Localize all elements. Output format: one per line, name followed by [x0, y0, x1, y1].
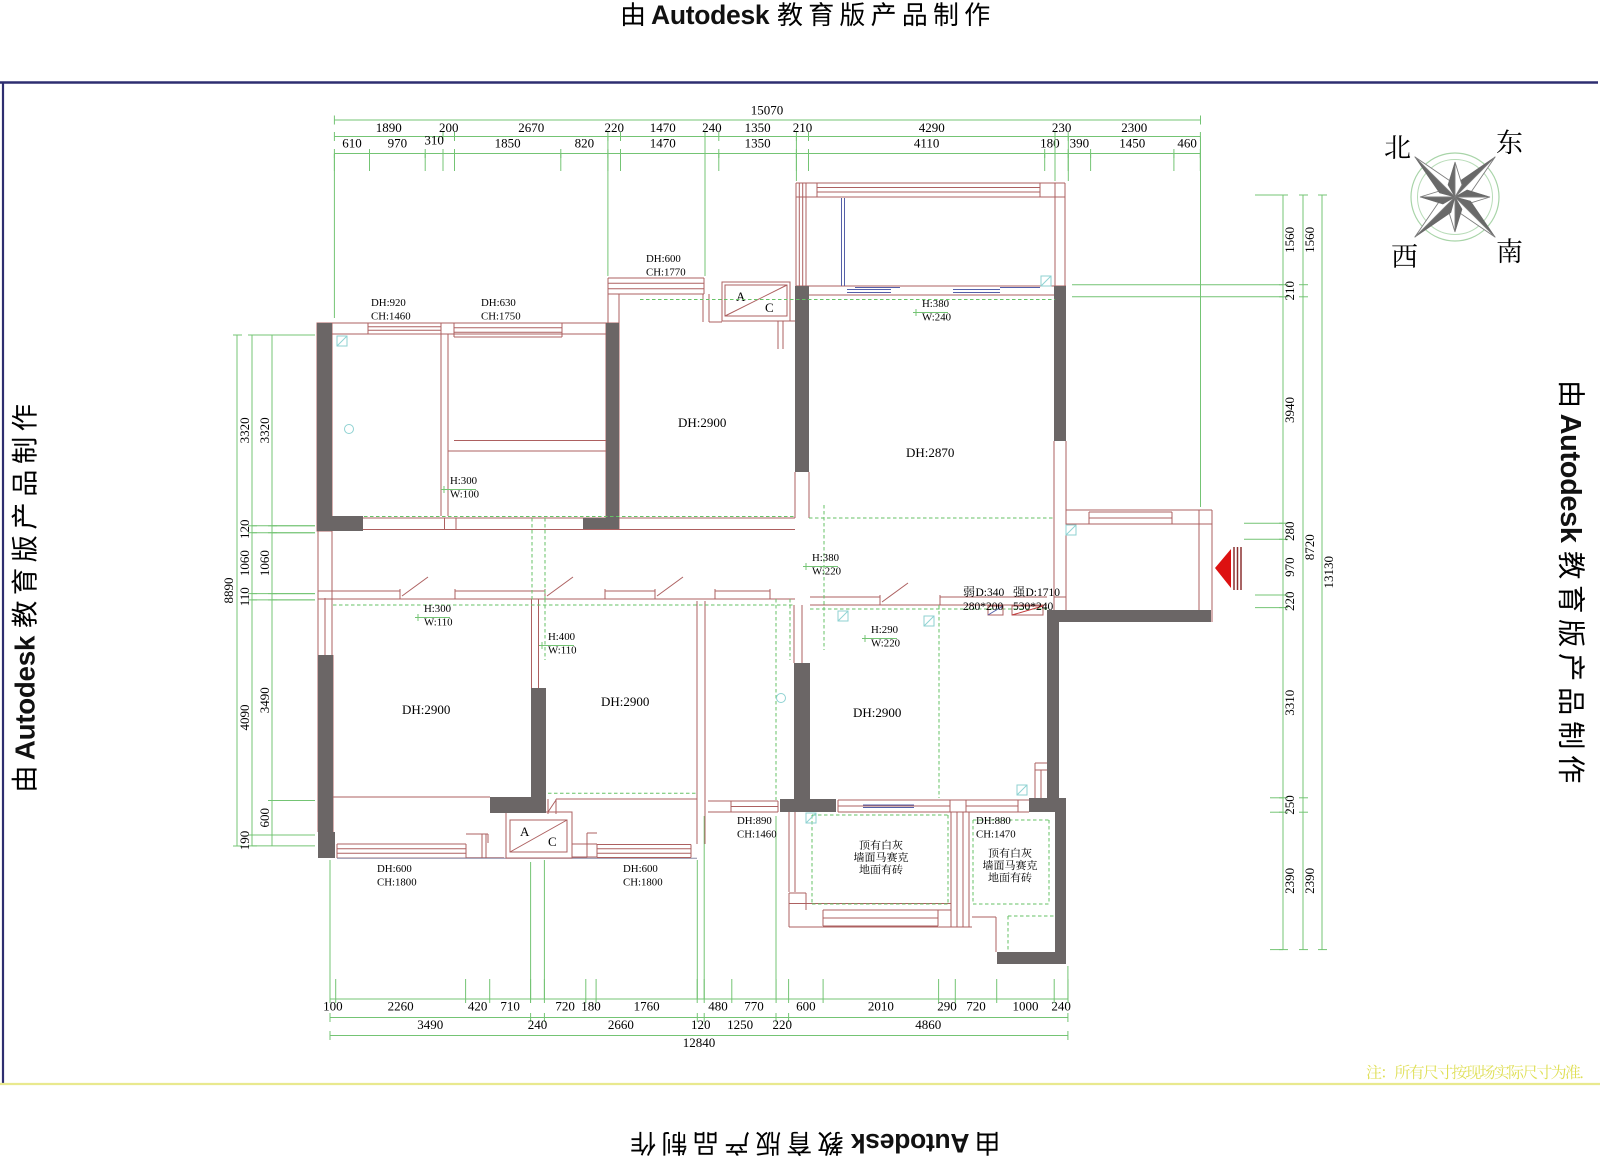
- svg-text:W:220: W:220: [871, 638, 900, 650]
- svg-text:DH:2900: DH:2900: [853, 705, 901, 720]
- svg-text:1560: 1560: [1302, 227, 1317, 253]
- svg-text:180: 180: [581, 999, 601, 1014]
- svg-text:D:340: D:340: [976, 587, 1005, 599]
- svg-text:390: 390: [1070, 136, 1090, 151]
- svg-text:240: 240: [528, 1017, 548, 1032]
- svg-text:290: 290: [937, 999, 957, 1014]
- svg-text:CH:1800: CH:1800: [623, 877, 663, 889]
- svg-text:D:1710: D:1710: [1026, 587, 1061, 599]
- svg-text:DH:2900: DH:2900: [678, 415, 726, 430]
- svg-text:DH:600: DH:600: [623, 863, 658, 875]
- svg-text:DH:600: DH:600: [646, 253, 681, 265]
- svg-text:120: 120: [237, 520, 252, 540]
- svg-text:DH:890: DH:890: [737, 815, 772, 827]
- svg-text:2260: 2260: [388, 999, 414, 1014]
- svg-text:W:100: W:100: [450, 489, 479, 501]
- svg-text:610: 610: [342, 136, 362, 151]
- svg-text:4090: 4090: [237, 704, 252, 730]
- svg-text:2390: 2390: [1302, 868, 1317, 894]
- svg-text:110: 110: [237, 587, 252, 606]
- svg-text:100: 100: [323, 999, 343, 1014]
- svg-text:1350: 1350: [745, 120, 771, 135]
- svg-text:4860: 4860: [915, 1017, 941, 1032]
- svg-text:CH:1800: CH:1800: [377, 877, 417, 889]
- svg-text:DH:2900: DH:2900: [402, 702, 450, 717]
- svg-text:DH:600: DH:600: [377, 863, 412, 875]
- svg-text:420: 420: [468, 999, 488, 1014]
- svg-text:710: 710: [500, 999, 520, 1014]
- svg-text:1470: 1470: [650, 136, 676, 151]
- svg-text:1250: 1250: [727, 1017, 753, 1032]
- svg-text:1060: 1060: [257, 550, 272, 576]
- svg-text:8720: 8720: [1302, 534, 1317, 560]
- svg-text:120: 120: [691, 1017, 711, 1032]
- svg-text:230: 230: [1052, 120, 1072, 135]
- svg-text:220: 220: [773, 1017, 793, 1032]
- svg-text:W:110: W:110: [424, 617, 453, 629]
- svg-text:A: A: [520, 824, 530, 839]
- svg-text:600: 600: [257, 808, 272, 828]
- svg-text:CH:1750: CH:1750: [481, 311, 521, 323]
- svg-text:720: 720: [966, 999, 986, 1014]
- svg-text:720: 720: [555, 999, 575, 1014]
- svg-text:8890: 8890: [221, 578, 236, 604]
- svg-text:H:290: H:290: [871, 624, 898, 636]
- svg-text:1890: 1890: [376, 120, 402, 135]
- svg-text:CH:1770: CH:1770: [646, 267, 686, 279]
- svg-text:970: 970: [1282, 557, 1297, 577]
- svg-text:2670: 2670: [518, 120, 544, 135]
- svg-text:210: 210: [1282, 281, 1297, 301]
- svg-text:H:380: H:380: [922, 298, 949, 310]
- svg-text:C: C: [548, 834, 557, 849]
- svg-text:310: 310: [424, 133, 444, 148]
- svg-text:250: 250: [1282, 795, 1297, 815]
- svg-text:3320: 3320: [257, 417, 272, 443]
- svg-text:CH:1460: CH:1460: [371, 311, 411, 323]
- svg-text:220: 220: [1282, 592, 1297, 612]
- svg-text:12840: 12840: [683, 1035, 716, 1050]
- svg-text:280: 280: [1282, 522, 1297, 542]
- svg-text:2300: 2300: [1121, 120, 1147, 135]
- svg-text:H:300: H:300: [450, 475, 477, 487]
- svg-text:1450: 1450: [1119, 136, 1145, 151]
- svg-text:190: 190: [237, 831, 252, 851]
- svg-text:DH:630: DH:630: [481, 297, 516, 309]
- svg-text:970: 970: [388, 136, 408, 151]
- svg-text:4110: 4110: [914, 136, 940, 151]
- svg-text:220: 220: [604, 120, 624, 135]
- svg-text:2390: 2390: [1282, 868, 1297, 894]
- svg-text:CH:1470: CH:1470: [976, 829, 1016, 841]
- svg-text:13130: 13130: [1321, 556, 1336, 589]
- svg-text:2660: 2660: [608, 1017, 634, 1032]
- svg-text:A: A: [736, 289, 746, 304]
- svg-text:3320: 3320: [237, 417, 252, 443]
- svg-text:1350: 1350: [745, 136, 771, 151]
- svg-text:DH:2900: DH:2900: [601, 694, 649, 709]
- svg-text:180: 180: [1040, 136, 1060, 151]
- svg-text:H:380: H:380: [812, 552, 839, 564]
- svg-text:W:220: W:220: [812, 566, 841, 578]
- svg-text:H:300: H:300: [424, 603, 451, 615]
- svg-text:15070: 15070: [751, 103, 784, 118]
- svg-text:3490: 3490: [417, 1017, 443, 1032]
- svg-text:3310: 3310: [1282, 690, 1297, 716]
- svg-text:DH:2870: DH:2870: [906, 445, 954, 460]
- svg-text:280*200: 280*200: [963, 601, 1004, 613]
- svg-text:770: 770: [744, 999, 764, 1014]
- svg-text:1560: 1560: [1282, 227, 1297, 253]
- svg-text:1060: 1060: [237, 550, 252, 576]
- svg-text:1760: 1760: [634, 999, 660, 1014]
- svg-text:1850: 1850: [495, 136, 521, 151]
- svg-text:240: 240: [702, 120, 722, 135]
- svg-text:460: 460: [1177, 136, 1197, 151]
- svg-text:3490: 3490: [257, 687, 272, 713]
- svg-text:600: 600: [796, 999, 816, 1014]
- svg-text:DH:920: DH:920: [371, 297, 406, 309]
- svg-text:C: C: [765, 300, 774, 315]
- svg-text:3940: 3940: [1282, 397, 1297, 423]
- svg-text:DH:880: DH:880: [976, 815, 1011, 827]
- svg-text:2010: 2010: [868, 999, 894, 1014]
- svg-text:530*240: 530*240: [1013, 601, 1054, 613]
- svg-text:1470: 1470: [650, 120, 676, 135]
- svg-text:1000: 1000: [1012, 999, 1038, 1014]
- svg-text:CH:1460: CH:1460: [737, 829, 777, 841]
- svg-text:W:110: W:110: [548, 645, 577, 657]
- svg-text:H:400: H:400: [548, 631, 575, 643]
- svg-text:480: 480: [708, 999, 728, 1014]
- svg-text:210: 210: [793, 120, 813, 135]
- svg-text:4290: 4290: [919, 120, 945, 135]
- svg-text:Autodesk: Autodesk: [651, 0, 770, 30]
- svg-text:W:240: W:240: [922, 312, 951, 324]
- svg-text:820: 820: [575, 136, 595, 151]
